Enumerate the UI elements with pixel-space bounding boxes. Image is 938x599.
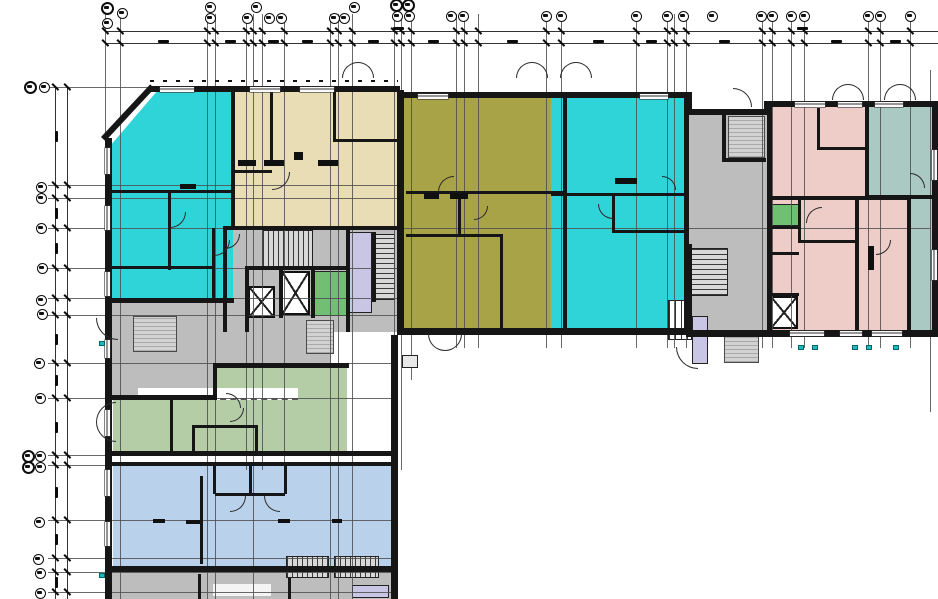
window-sill-mark (852, 345, 858, 350)
dimension-value (158, 40, 169, 43)
grid-bubble-top (446, 11, 457, 22)
dimension-value (268, 40, 279, 43)
wall-segment (722, 158, 766, 162)
window (932, 150, 937, 180)
wall-segment (551, 193, 684, 196)
grid-bubble-left (35, 588, 46, 599)
grid-bubble-top (390, 0, 403, 12)
casework-fixture (264, 160, 284, 166)
window (105, 148, 110, 174)
grid-axis-vline (464, 14, 465, 348)
grid-axis-vline (674, 14, 675, 348)
grid-bubble-left (24, 81, 37, 94)
dimension-value (55, 422, 58, 433)
grid-axis-vline (772, 14, 773, 348)
grid-bubble-left (34, 517, 45, 528)
grid-axis-vline (215, 14, 216, 599)
grid-bubble-top (556, 11, 567, 22)
window (418, 94, 448, 99)
grid-bubble-top (205, 13, 216, 24)
casework-fixture (318, 160, 338, 166)
dimension-value (55, 208, 58, 219)
wall-segment (200, 476, 203, 564)
door-swing (848, 84, 864, 100)
wall-segment (111, 395, 217, 400)
grid-bubble-top (678, 11, 689, 22)
grid-axis-vline (930, 70, 931, 412)
grid-bubble-top (799, 11, 810, 22)
grid-axis-vline (478, 14, 479, 348)
grid-bubble-left (35, 568, 46, 579)
casework-fixture (278, 519, 290, 523)
white-box-bottom (213, 584, 271, 596)
elevator-shaft (281, 271, 310, 315)
window (105, 470, 110, 496)
dimension-value (797, 27, 808, 30)
dimension-value (55, 487, 58, 498)
window-sill-mark (893, 345, 899, 350)
dimension-value (55, 534, 58, 545)
unit-tan[interactable] (233, 90, 399, 230)
elevator-shaft (770, 296, 798, 329)
grid-axis-vline (246, 14, 247, 470)
wall-segment (245, 266, 349, 270)
casework-fixture (153, 519, 165, 523)
window (250, 87, 280, 92)
wall-segment (311, 268, 315, 318)
window-sill-mark (99, 341, 105, 346)
door-swing (576, 62, 592, 78)
wall-segment (798, 199, 801, 243)
grid-axis-vline (804, 14, 805, 348)
dimension-value (719, 40, 730, 43)
grid-bubble-top (756, 11, 767, 22)
grid-bubble-left (35, 462, 46, 473)
window-sill-mark (866, 345, 872, 350)
wall-segment (865, 104, 869, 198)
window (105, 206, 110, 230)
wall-segment (215, 363, 349, 368)
window (160, 87, 194, 92)
wall-segment (110, 566, 393, 572)
window (838, 102, 862, 107)
grid-axis-vline (207, 14, 208, 599)
grid-bubble-top (264, 13, 275, 24)
wall-segment (255, 427, 258, 453)
dimension-value (302, 40, 313, 43)
window-sill-mark (798, 345, 804, 350)
dimension-value (428, 40, 439, 43)
casework-fixture (186, 520, 200, 524)
grid-bubble-top (458, 11, 469, 22)
window (640, 94, 668, 99)
wall-segment (346, 230, 350, 332)
casework-fixture (180, 184, 196, 189)
wall-segment (112, 190, 232, 193)
wall-segment (245, 266, 249, 332)
wall-segment (231, 90, 235, 230)
door-swing (676, 347, 698, 369)
casework-fixture (868, 246, 874, 270)
grid-axis-vline (456, 14, 457, 348)
grid-bubble-left (39, 82, 50, 93)
dimension-value (593, 40, 604, 43)
wall-segment (110, 451, 392, 456)
dimension-value (55, 375, 58, 386)
wall-segment (284, 462, 287, 494)
dimension-line-top (105, 43, 938, 44)
grid-bubble-top (767, 11, 778, 22)
wall-segment (333, 139, 398, 142)
wall-segment (688, 244, 692, 332)
grid-axis-hline (48, 185, 397, 186)
window (875, 102, 903, 107)
unit-cyan-b[interactable] (551, 94, 685, 330)
window (932, 250, 937, 280)
wall-segment (722, 112, 726, 162)
grid-axis-vline (262, 14, 263, 470)
wall-segment (397, 90, 404, 333)
wall-segment (563, 94, 567, 330)
grid-axis-vline (338, 14, 339, 599)
dimension-value (55, 243, 58, 254)
grid-bubble-top (707, 11, 718, 22)
grid-axis-vline (762, 14, 763, 348)
dimension-value (55, 577, 58, 588)
dimension-value (507, 40, 518, 43)
window (105, 340, 110, 358)
window (790, 331, 824, 336)
wall-segment (192, 425, 258, 428)
dimension-value (368, 40, 379, 43)
window (105, 272, 110, 296)
door-swing (884, 84, 900, 100)
door-swing (900, 84, 916, 100)
wall-segment (769, 252, 799, 255)
dimension-line-top (105, 31, 938, 32)
window (795, 102, 825, 107)
stair-run (374, 234, 395, 300)
wall-segment (612, 230, 684, 233)
grid-axis-vline (561, 14, 562, 348)
wall-segment (270, 90, 273, 164)
dimension-value (890, 40, 901, 43)
grid-bubble-left (35, 393, 46, 404)
balcony-railing (150, 80, 398, 82)
wall-segment (771, 196, 909, 200)
grid-bubble-top (117, 8, 128, 19)
wall-segment (688, 109, 770, 115)
grid-bubble-top (404, 11, 415, 22)
wall-segment (907, 199, 911, 332)
grid-bubble-top (786, 11, 797, 22)
wall-segment (855, 199, 859, 332)
wall-segment (769, 293, 799, 296)
grid-bubble-left (33, 554, 44, 565)
grid-bubble-top (329, 13, 340, 24)
grid-axis-vline (880, 14, 881, 348)
grid-bubble-top (349, 2, 360, 13)
door-swing (96, 318, 118, 340)
grid-bubble-top (863, 11, 874, 22)
grid-axis-vline (253, 14, 254, 599)
grid-bubble-top (402, 0, 415, 12)
wall-segment (406, 234, 503, 237)
grid-axis-hline (48, 198, 397, 199)
wall-segment (168, 193, 171, 270)
door-swing (96, 422, 116, 442)
wall-segment (333, 90, 336, 142)
grid-bubble-left (37, 309, 48, 320)
wall-segment (249, 462, 252, 494)
wall-segment (767, 107, 772, 333)
dimension-value (55, 334, 58, 345)
wall-segment (198, 574, 201, 599)
grid-bubble-left (22, 461, 35, 474)
grid-bubble-top (662, 11, 673, 22)
dimension-value (393, 27, 404, 30)
window (872, 331, 902, 336)
dimension-value (55, 131, 58, 142)
window (840, 331, 862, 336)
casework-fixture (332, 519, 342, 523)
grid-bubble-left (35, 451, 46, 462)
casework-fixture (615, 178, 637, 184)
grid-bubble-top (392, 11, 403, 22)
grid-axis-vline (791, 14, 792, 348)
unit-teal-top[interactable] (867, 104, 937, 197)
wall-segment (391, 335, 398, 599)
grid-bubble-left (37, 263, 48, 274)
dimension-value (831, 40, 842, 43)
floor-plan-canvas (0, 0, 938, 599)
wall-segment (112, 266, 214, 269)
entry-platform (402, 355, 418, 368)
wall-segment (817, 108, 820, 150)
wall-segment (213, 363, 217, 399)
door-swing (96, 402, 116, 422)
wall-segment (817, 147, 869, 150)
grid-bubble-left (36, 295, 47, 306)
green-room-right (771, 204, 799, 226)
door-swing (516, 62, 532, 78)
grid-axis-vline (411, 14, 412, 380)
wall-segment (288, 578, 291, 599)
grid-bubble-top (276, 13, 287, 24)
grid-axis-vline (120, 14, 121, 599)
wall-segment (192, 427, 195, 453)
grid-bubble-top (101, 2, 114, 15)
door-swing (358, 62, 374, 78)
wall-segment (372, 232, 376, 302)
ramp-pad (728, 116, 765, 158)
wall-segment (234, 170, 272, 173)
wall-segment (798, 240, 858, 243)
casework-fixture (238, 160, 256, 166)
door-swing (832, 84, 848, 100)
door-swing (560, 62, 576, 78)
grid-axis-hline (48, 592, 397, 593)
window (300, 87, 334, 92)
grid-axis-hline (48, 558, 397, 559)
grid-bubble-top (541, 11, 552, 22)
window-sill-mark (99, 573, 105, 578)
grid-bubble-left (36, 223, 47, 234)
wall-segment (170, 400, 173, 454)
wall-segment (213, 462, 216, 494)
wall-segment (932, 101, 938, 337)
stair-run (690, 248, 728, 296)
window (105, 522, 110, 546)
dimension-value (225, 40, 236, 43)
grid-bubble-top (102, 18, 113, 29)
grid-axis-hline (48, 520, 397, 521)
dimension-value (646, 40, 657, 43)
grid-bubble-top (205, 2, 216, 13)
wall-segment (769, 226, 799, 229)
door-swing (445, 334, 462, 351)
door-swing (428, 334, 445, 351)
casework-fixture (294, 152, 303, 160)
grid-bubble-top (339, 13, 350, 24)
grid-bubble-left (34, 358, 45, 369)
door-swing (342, 62, 358, 78)
grid-bubble-left (36, 182, 47, 193)
grid-axis-vline (352, 14, 353, 599)
stair-run (262, 230, 313, 268)
grid-axis-vline (330, 14, 331, 599)
casework-fixture (450, 193, 468, 199)
wall-segment (279, 268, 283, 318)
casework-fixture (424, 193, 439, 199)
wall-segment (223, 226, 399, 230)
grid-bubble-top (905, 11, 916, 22)
grid-bubble-top (631, 11, 642, 22)
grid-axis-hline (48, 398, 397, 399)
grid-bubble-top (875, 11, 886, 22)
grid-axis-vline (546, 14, 547, 348)
grid-axis-vline (284, 14, 285, 470)
grid-bubble-top (251, 2, 262, 13)
ramp-pad (133, 316, 177, 352)
wall-segment (110, 298, 234, 303)
grid-bubble-top (242, 13, 253, 24)
door-swing (733, 88, 752, 107)
window-sill-mark (812, 345, 818, 350)
grid-bubble-left (36, 193, 47, 204)
wall-segment (500, 236, 503, 330)
